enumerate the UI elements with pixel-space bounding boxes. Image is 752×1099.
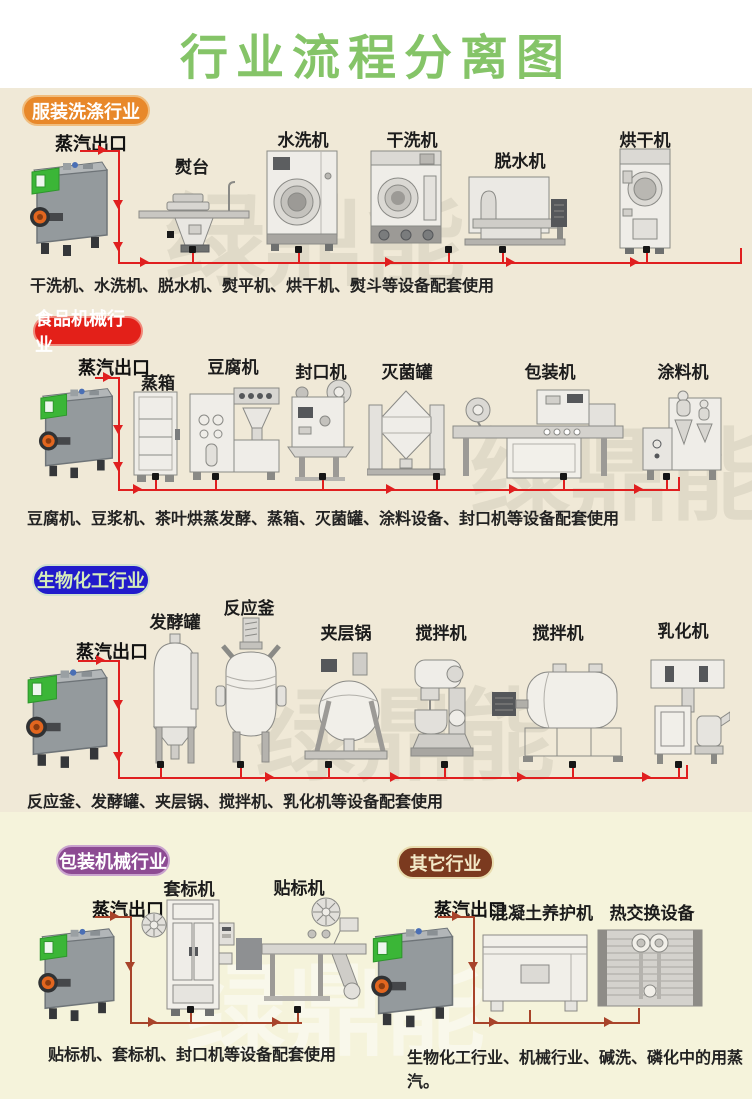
fermentation-tank-art — [145, 629, 205, 769]
pipe-arrow-icon — [385, 257, 394, 267]
steam-pipe — [678, 477, 680, 489]
planetary-mixer-art — [407, 654, 479, 766]
dryer-art — [617, 145, 673, 255]
valve-icon — [499, 246, 506, 253]
machine-label: 搅拌机 — [405, 619, 477, 644]
badge-label: 食品机械行业 — [35, 305, 141, 357]
pipe-arrow-icon — [113, 425, 123, 434]
valve-icon — [663, 473, 670, 480]
valve-icon — [157, 761, 164, 768]
steam-generator-art — [20, 660, 118, 770]
valve-icon — [319, 473, 326, 480]
valve-icon — [325, 761, 332, 768]
pipe-arrow-icon — [113, 752, 123, 761]
pipe-arrow-icon — [630, 257, 639, 267]
emulsifier-art — [645, 654, 730, 766]
badge-food-machinery-industry: 食品机械行业 — [33, 316, 143, 346]
section-caption: 生物化工行业、机械行业、碱洗、磷化中的用蒸汽。 — [407, 1044, 752, 1092]
labeling-machine-art — [234, 892, 369, 1014]
pipe-arrow-icon — [265, 772, 274, 782]
pipe-arrow-icon — [489, 1017, 498, 1027]
steam-pipe — [638, 1008, 640, 1022]
pipe-arrow-icon — [113, 700, 123, 709]
steam-pipe — [118, 262, 742, 264]
valve-icon — [294, 1006, 301, 1013]
steam-pipe — [740, 248, 742, 264]
pipe-arrow-icon — [642, 772, 651, 782]
pipe-arrow-icon — [110, 911, 119, 921]
section-caption: 贴标机、套标机、封口机等设备配套使用 — [48, 1041, 336, 1065]
machine-label: 搅拌机 — [522, 619, 594, 644]
badge-label: 其它行业 — [410, 850, 482, 876]
pipe-arrow-icon — [506, 257, 515, 267]
section-caption: 反应釜、发酵罐、夹层锅、搅拌机、乳化机等设备配套使用 — [27, 788, 443, 812]
valve-icon — [441, 761, 448, 768]
pipe-arrow-icon — [96, 655, 105, 665]
concrete-curing-machine-art — [479, 927, 591, 1015]
steam-generator-art — [366, 918, 463, 1030]
section-caption: 豆腐机、豆浆机、茶叶烘蒸发酵、蒸箱、灭菌罐、涂料设备、封口机等设备配套使用 — [27, 505, 619, 529]
valve-icon — [295, 246, 302, 253]
pipe-arrow-icon — [148, 1017, 157, 1027]
pipe-arrow-icon — [452, 911, 461, 921]
heat-exchanger-art — [594, 925, 706, 1013]
steam-generator-art — [25, 153, 117, 258]
pipe-arrow-icon — [272, 1017, 281, 1027]
pipe-arrow-icon — [98, 145, 107, 155]
pipe-arrow-icon — [390, 772, 399, 782]
valve-icon — [569, 761, 576, 768]
dry-cleaner-art — [368, 146, 444, 256]
steam-generator-art — [32, 920, 125, 1023]
pipe-arrow-icon — [517, 772, 526, 782]
valve-icon — [433, 473, 440, 480]
machine-label: 乳化机 — [647, 617, 719, 642]
steam-pipe — [473, 1022, 640, 1024]
badge-biochemical-industry: 生物化工行业 — [32, 564, 150, 596]
washer-art — [263, 146, 341, 256]
valve-icon — [152, 473, 159, 480]
pipe-arrow-icon — [103, 372, 112, 382]
steam-pipe — [529, 1010, 531, 1022]
badge-other-industries: 其它行业 — [397, 846, 494, 879]
industry-process-diagram: 行业流程分离图 绿鼎能 绿鼎能 绿鼎能 绿鼎能 服装洗涤行业 蒸汽出口 熨台 — [0, 0, 752, 1099]
machine-label: 涂料机 — [647, 358, 719, 383]
badge-clothing-washing-industry: 服装洗涤行业 — [22, 95, 150, 126]
pipe-arrow-icon — [509, 484, 518, 494]
pipe-arrow-icon — [133, 484, 142, 494]
tofu-machine-art — [187, 382, 282, 482]
dehydrator-art — [461, 167, 571, 255]
valve-icon — [189, 246, 196, 253]
valve-icon — [187, 1006, 194, 1013]
reactor-art — [211, 614, 291, 769]
jacketed-kettle-art — [297, 649, 392, 769]
sealing-machine-art — [287, 377, 355, 482]
pipe-arrow-icon — [468, 962, 478, 971]
pipe-arrow-icon — [113, 462, 123, 471]
machine-label: 豆腐机 — [197, 353, 269, 378]
page-title: 行业流程分离图 — [0, 18, 752, 88]
pipe-arrow-icon — [140, 257, 149, 267]
valve-icon — [445, 246, 452, 253]
packaging-machine-art — [451, 384, 626, 484]
pipe-arrow-icon — [125, 962, 135, 971]
badge-label: 生物化工行业 — [37, 567, 145, 593]
machine-label: 包装机 — [514, 358, 586, 383]
machine-label: 夹层锅 — [310, 619, 382, 644]
steam-pipe — [118, 777, 688, 779]
valve-icon — [675, 761, 682, 768]
coating-machine-art — [639, 382, 724, 482]
badge-label: 服装洗涤行业 — [32, 98, 140, 124]
steam-cabinet-art — [131, 389, 181, 484]
drum-mixer-art — [487, 656, 632, 764]
steam-generator-art — [34, 380, 122, 480]
machine-label: 混凝土养护机 — [484, 899, 600, 924]
pipe-arrow-icon — [113, 242, 123, 251]
pipe-arrow-icon — [113, 200, 123, 209]
badge-packaging-machinery-industry: 包装机械行业 — [56, 845, 170, 876]
valve-icon — [237, 761, 244, 768]
steam-pipe — [118, 489, 680, 491]
valve-icon — [212, 473, 219, 480]
sleeve-labeler-art — [141, 895, 236, 1017]
valve-icon — [643, 246, 650, 253]
steam-pipe — [686, 765, 688, 777]
pipe-arrow-icon — [634, 484, 643, 494]
pipe-arrow-icon — [604, 1017, 613, 1027]
pipe-arrow-icon — [386, 484, 395, 494]
ironing-table-art — [137, 175, 252, 257]
sterilizer-tank-art — [367, 379, 447, 484]
valve-icon — [560, 473, 567, 480]
section-caption: 干洗机、水洗机、脱水机、熨平机、烘干机、熨斗等设备配套使用 — [30, 272, 494, 296]
badge-label: 包装机械行业 — [59, 848, 167, 874]
machine-label: 热交换设备 — [602, 899, 702, 924]
